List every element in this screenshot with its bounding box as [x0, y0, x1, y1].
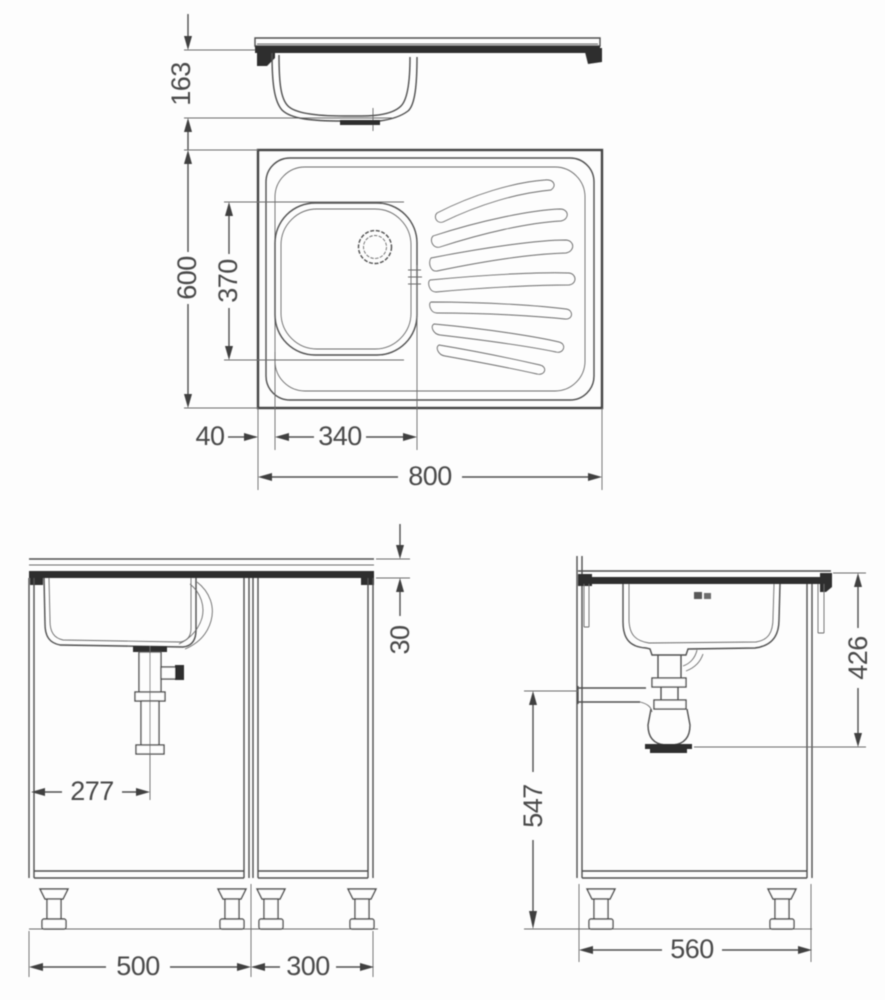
trap-cup — [648, 709, 690, 745]
profile-drain-boss — [340, 120, 380, 125]
dim-340-label: 340 — [318, 421, 362, 451]
plan-view: 600 370 40 340 800 — [172, 150, 602, 491]
profile-bowl-section — [272, 53, 417, 125]
bowl-mark — [694, 592, 702, 599]
side-right-clip — [820, 573, 832, 592]
front-left-clip — [30, 576, 43, 585]
dim-426-label: 426 — [843, 636, 873, 680]
side-bowl-section — [623, 584, 780, 655]
front-cabinets — [29, 578, 378, 929]
dim-547-label: 547 — [518, 784, 548, 828]
dim-300-label: 300 — [286, 951, 330, 981]
drainboard-fan-grooves — [429, 180, 575, 374]
side-cabinet — [577, 556, 832, 929]
dim-163-label: 163 — [166, 62, 196, 106]
dim-426: 426 — [694, 573, 873, 747]
sink-dimension-drawing: 163 — [0, 0, 885, 1000]
cabinet-bottom-shelves — [34, 871, 368, 878]
drawing-sheet: 163 — [0, 0, 885, 1000]
dim-560-label: 560 — [670, 934, 714, 964]
side-left-tab — [584, 584, 589, 627]
side-left-clip — [578, 574, 592, 586]
side-profile-view: 163 — [166, 14, 602, 150]
plan-rim-line — [266, 158, 594, 400]
dim-370-label: 370 — [213, 259, 243, 303]
side-trap-assembly — [578, 650, 703, 753]
trap-nut-upper — [652, 678, 686, 687]
side-legs — [587, 889, 796, 929]
dim-500-label: 500 — [116, 951, 160, 981]
trap-tailpiece — [658, 655, 681, 678]
front-rim-slab — [29, 559, 374, 585]
dim-40-340-800: 40 340 800 — [195, 265, 602, 491]
trap-nut-lower — [654, 700, 686, 709]
dim-600-label: 600 — [172, 256, 202, 300]
overflow-hose — [185, 582, 212, 649]
right-mounting-clip — [584, 48, 602, 64]
trap-flange — [645, 744, 692, 749]
dim-30-label: 30 — [385, 625, 415, 654]
dim-30: 30 — [376, 524, 415, 655]
dim-277: 277 — [31, 776, 150, 806]
front-legs — [40, 889, 376, 929]
front-elevation-view: 30 277 500 300 — [29, 524, 415, 981]
dishwasher-spigot — [161, 667, 176, 679]
dim-800-label: 800 — [408, 461, 452, 491]
dim-370: 370 — [213, 202, 404, 360]
plan-pressed-panel — [275, 167, 585, 391]
bowl-edge-ticks — [408, 270, 422, 284]
side-elevation-view: 426 547 560 — [518, 556, 873, 964]
dim-277-label: 277 — [70, 776, 114, 806]
profile-rim-slab — [255, 38, 602, 66]
waste-outlet-pipe — [578, 686, 646, 704]
side-rim-band — [578, 577, 831, 584]
dim-547: 547 — [518, 691, 578, 929]
front-bowl-and-waste — [44, 578, 212, 800]
dim-500-300: 500 300 — [29, 884, 374, 981]
plan-bowl — [275, 203, 422, 355]
plan-outer-edge — [258, 150, 602, 408]
dim-40-label: 40 — [195, 421, 224, 451]
dim-163: 163 — [166, 14, 392, 150]
